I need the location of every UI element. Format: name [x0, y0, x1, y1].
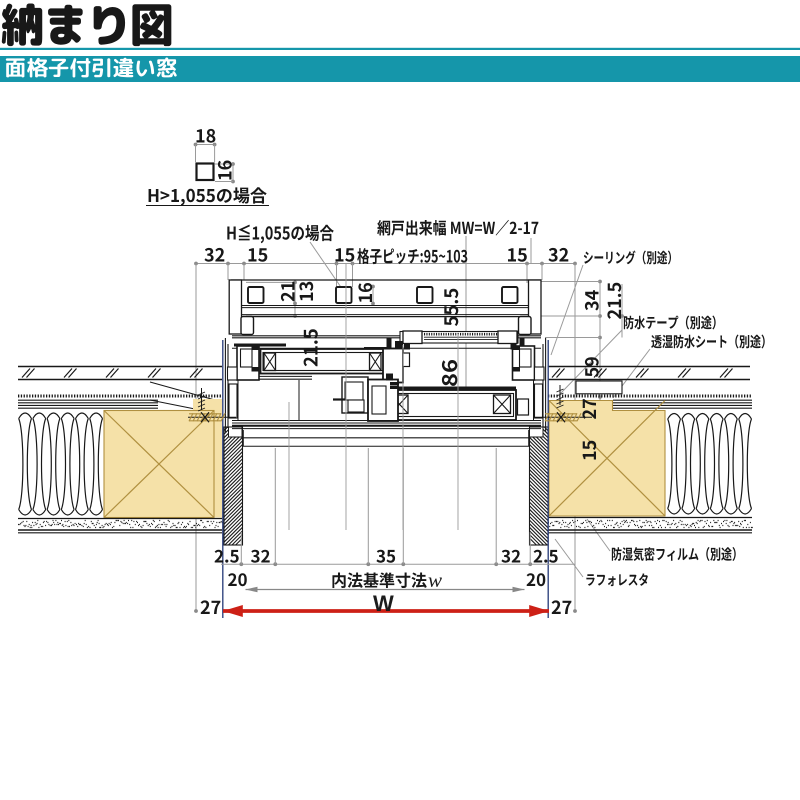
svg-text:w: w	[428, 568, 442, 592]
svg-text:W: W	[373, 591, 394, 616]
